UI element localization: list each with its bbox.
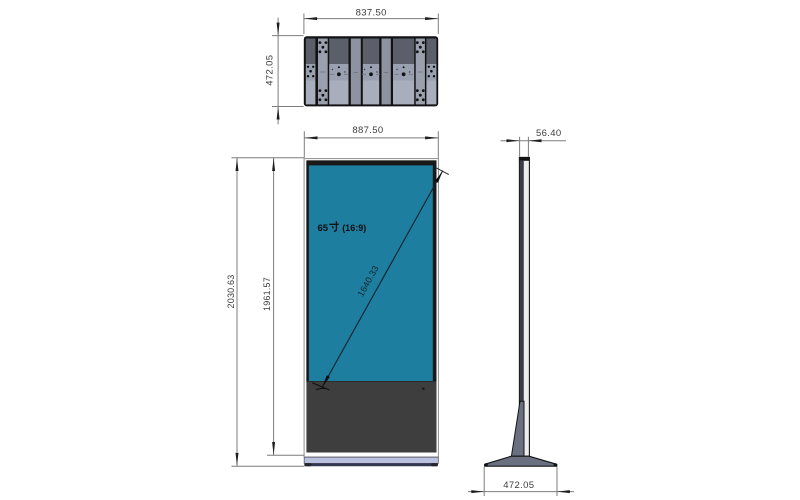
svg-text:1961.57: 1961.57 <box>262 277 272 311</box>
svg-text:56.40: 56.40 <box>536 128 562 139</box>
svg-text:472.05: 472.05 <box>503 480 534 491</box>
svg-text:887.50: 887.50 <box>352 125 383 136</box>
svg-text:2030.63: 2030.63 <box>226 275 236 309</box>
svg-text:65: 65 <box>318 223 329 234</box>
svg-text:837.50: 837.50 <box>356 7 387 18</box>
svg-text:(16:9): (16:9) <box>342 223 366 233</box>
svg-text:472.05: 472.05 <box>264 55 275 86</box>
